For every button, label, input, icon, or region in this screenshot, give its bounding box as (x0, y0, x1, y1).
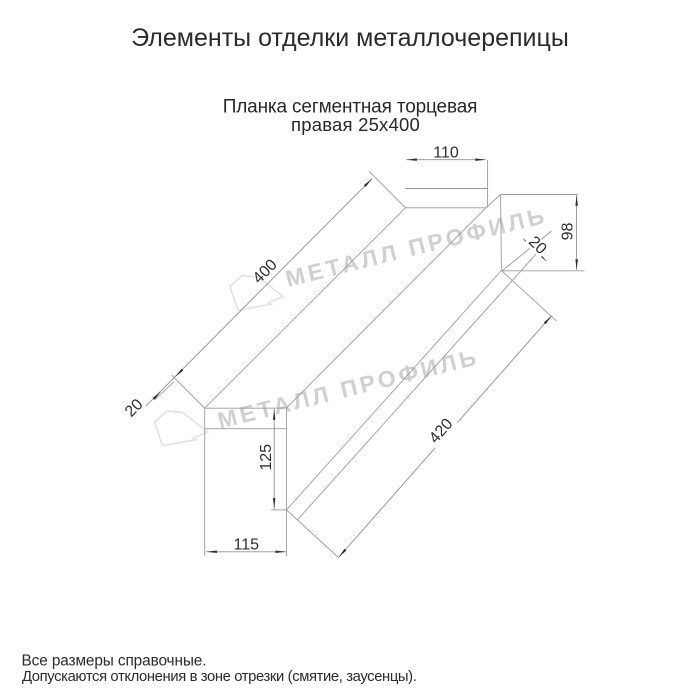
svg-text:115: 115 (234, 537, 260, 554)
svg-text:110: 110 (433, 145, 459, 162)
svg-text:правая 25х400: правая 25х400 (291, 114, 420, 135)
svg-text:Допускаются отклонения в зоне: Допускаются отклонения в зоне отрезки (с… (22, 669, 416, 685)
svg-text:125: 125 (258, 444, 275, 471)
svg-text:Все размеры справочные.: Все размеры справочные. (22, 652, 207, 669)
svg-text:Элементы отделки металлочерепи: Элементы отделки металлочерепицы (131, 24, 569, 52)
svg-text:98: 98 (560, 223, 577, 241)
